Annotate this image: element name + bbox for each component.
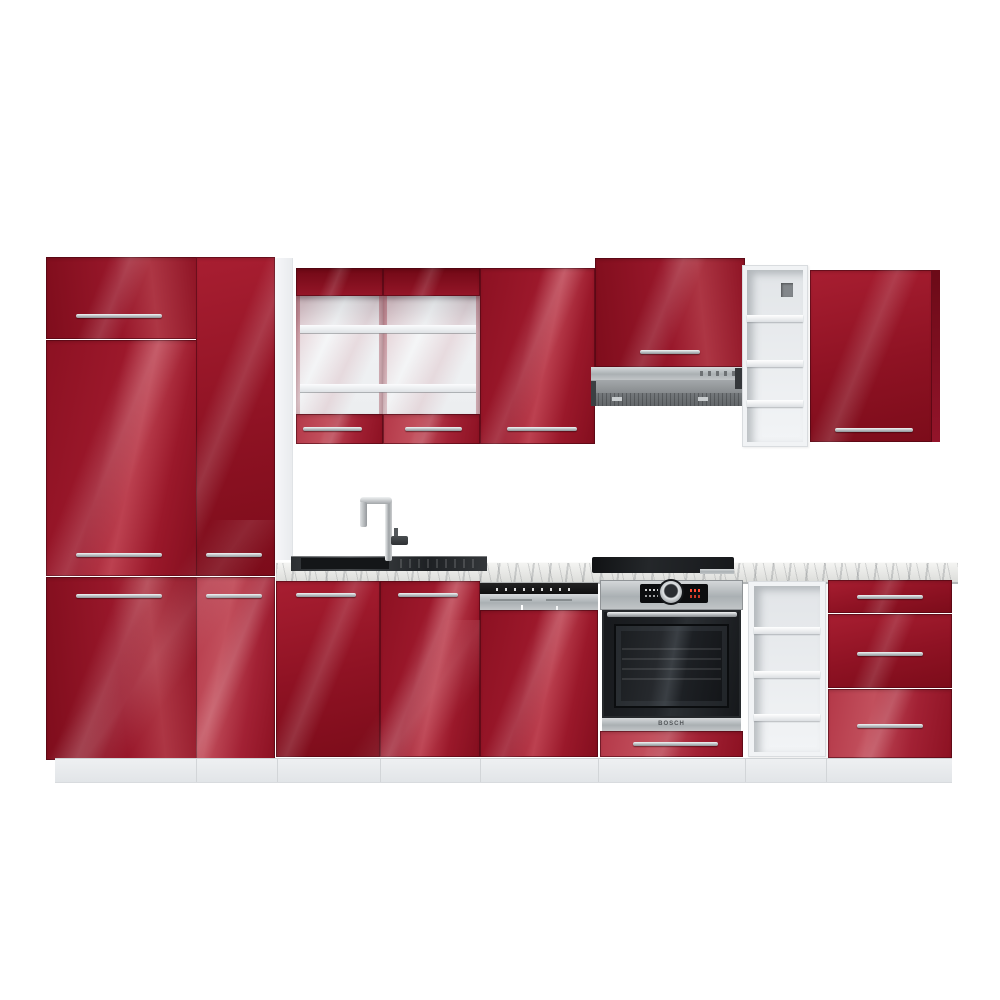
sink-base-door-2	[380, 581, 480, 757]
right-wall-cabinet-side-face	[932, 270, 940, 442]
oven-display-icons	[645, 595, 658, 597]
dishwasher-fascia-text	[546, 599, 572, 601]
dishwasher-fascia	[480, 594, 598, 610]
pantry-a-middle-door-handle	[76, 553, 162, 557]
glass-cabinet-1-glass-door	[296, 296, 383, 414]
wall-open-shelf	[747, 360, 803, 367]
cooker-hood-lamp	[612, 397, 622, 401]
wall-open-shelf-cavity	[747, 270, 803, 442]
plinth-seam	[480, 759, 481, 782]
pantry-b-lower-door-handle	[206, 594, 262, 598]
sink-base-door-1	[276, 581, 380, 757]
wall-open-shelf	[747, 400, 803, 407]
plinth-seam	[380, 759, 381, 782]
pantry-a-top-door-handle	[76, 314, 162, 318]
pantry-b-lower-door	[196, 577, 275, 760]
base-open-shelf	[754, 627, 820, 634]
dishwasher-control-icons	[496, 588, 572, 591]
sink-drainer-grooves	[400, 559, 480, 568]
sink-basin	[301, 558, 389, 569]
plinth-seam	[277, 759, 278, 782]
kitchen-product-photo: BOSCH	[0, 0, 1000, 1000]
hood-wall-cabinet-handle	[640, 350, 700, 354]
wall-shelf-vent-hole	[781, 283, 793, 297]
cooker-hood-side-bracket	[591, 381, 596, 406]
glass-cabinet-2-top-band	[383, 268, 480, 296]
glass-cabinet-2-glass-door	[383, 296, 480, 414]
drawer-2-handle	[857, 652, 923, 656]
pantry-b-upper-door	[196, 257, 275, 576]
oven-brand-label: BOSCH	[602, 719, 741, 730]
oven-base-drawer-handle	[633, 742, 718, 746]
wall-open-shelf	[747, 315, 803, 322]
base-open-shelf-cavity	[754, 586, 820, 752]
dishwasher-furniture-front	[480, 610, 598, 757]
pantry-a-bottom-door	[46, 577, 198, 760]
pantry-a-top-door	[46, 257, 198, 339]
glass-cabinet-1-handle	[303, 427, 362, 431]
faucet-riser	[385, 499, 392, 561]
pantry-a-bottom-door-handle	[76, 594, 162, 598]
plinth-seam	[826, 759, 827, 782]
cooker-hood-visor	[591, 380, 747, 393]
pantry-a-middle-door	[46, 340, 198, 576]
pantry-b-upper-door-handle	[206, 553, 262, 557]
hob-front-trim	[700, 569, 734, 574]
oven-display-digits	[690, 595, 701, 598]
drawer-3-handle	[857, 724, 923, 728]
wall-cabinet-solid-handle	[507, 427, 577, 431]
faucet-spout	[360, 502, 367, 527]
kick-plinth	[55, 758, 952, 783]
oven-display-digits	[690, 589, 701, 592]
oven-door-handle	[607, 612, 737, 617]
oven-display-icons	[645, 589, 658, 591]
drawer-2	[828, 614, 952, 688]
sink-base-door-2-handle	[398, 593, 458, 597]
faucet-lever-handle	[391, 536, 408, 545]
dishwasher-fascia-text	[490, 599, 532, 601]
glass-cabinet-2-handle	[405, 427, 462, 431]
cooker-hood-lamp	[698, 397, 708, 401]
base-open-shelf	[754, 671, 820, 678]
plinth-seam	[745, 759, 746, 782]
wall-cabinet-solid	[480, 268, 595, 444]
base-open-shelf	[754, 714, 820, 721]
drawer-1-handle	[857, 595, 923, 599]
cooker-hood-buttons	[700, 371, 738, 376]
right-wall-cabinet-handle	[835, 428, 913, 432]
plinth-seam	[598, 759, 599, 782]
glass-cabinet-1-top-band	[296, 268, 383, 296]
glass-cabinet-shelf	[300, 325, 476, 333]
plinth-seam	[196, 759, 197, 782]
right-wall-cabinet	[810, 270, 932, 442]
oven-knob	[660, 581, 682, 603]
sink-base-door-1-handle	[296, 593, 356, 597]
carcass-side-panel	[275, 258, 293, 560]
glass-cabinet-shelf	[300, 384, 476, 392]
oven-window-reflection	[622, 648, 721, 682]
